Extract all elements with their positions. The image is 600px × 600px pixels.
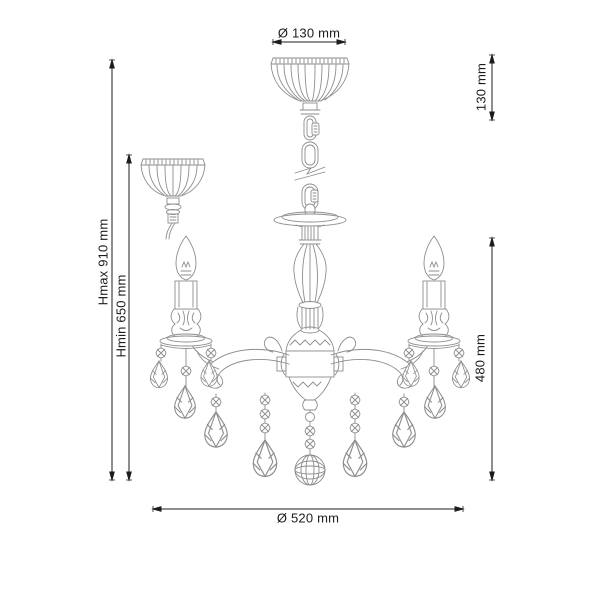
left-arm <box>150 236 289 476</box>
central-hub <box>277 327 343 410</box>
dim-label-height-min: Hmin 650 mm <box>114 274 129 357</box>
dim-label-canopy-diameter: Ø 130 mm <box>278 26 340 41</box>
break-symbol <box>295 167 325 180</box>
dim-line-fixture-height <box>489 238 495 480</box>
center-ball-drop <box>295 410 325 485</box>
dim-label-fixture-height: 480 mm <box>473 334 488 382</box>
main-canopy <box>271 58 349 114</box>
faceted-ball <box>295 455 325 485</box>
small-canopy <box>141 159 205 239</box>
dim-label-canopy-height: 130 mm <box>474 63 489 111</box>
central-column <box>274 212 346 329</box>
power-cord <box>166 223 175 239</box>
hanging-chain <box>295 116 325 216</box>
dim-label-height-max: Hmax 910 mm <box>96 219 111 306</box>
right-arm <box>331 236 470 476</box>
technical-drawing-page: Ø 130 mm 130 mm Hmax 910 mm Hmin 650 mm … <box>0 0 600 600</box>
dim-label-fixture-diameter: Ø 520 mm <box>277 511 339 526</box>
dim-line-canopy-height <box>489 55 495 120</box>
